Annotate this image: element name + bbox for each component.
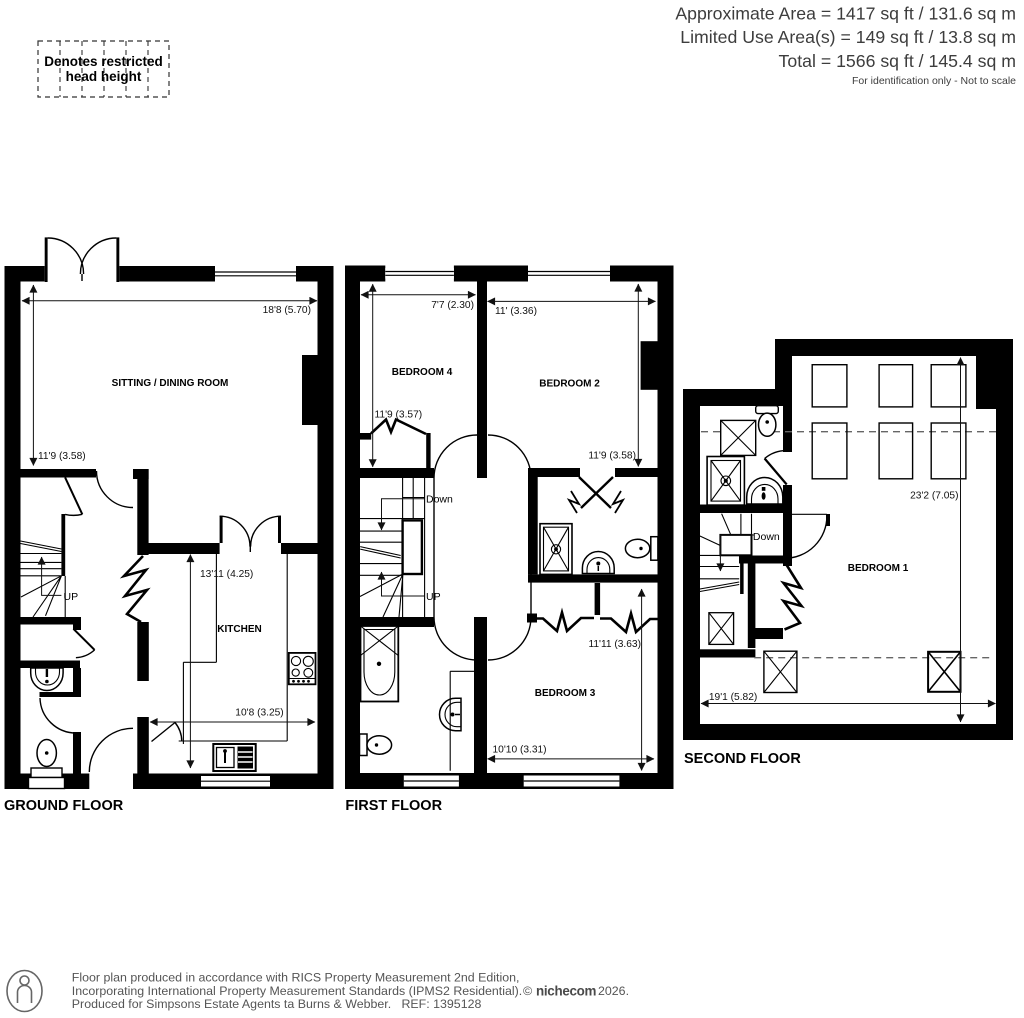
svg-text:Floor plan produced in accorda: Floor plan produced in accordance with R… <box>72 971 520 985</box>
svg-text:©: © <box>523 984 532 998</box>
svg-text:Produced for Simpsons Estate A: Produced for Simpsons Estate Agents ta B… <box>72 997 482 1011</box>
svg-text:23'2 (7.05): 23'2 (7.05) <box>910 491 958 502</box>
svg-text:11'11 (3.63): 11'11 (3.63) <box>588 639 641 650</box>
svg-text:GROUND FLOOR: GROUND FLOOR <box>4 798 124 814</box>
svg-text:19'1 (5.82): 19'1 (5.82) <box>709 692 757 703</box>
svg-text:SITTING / DINING ROOM: SITTING / DINING ROOM <box>112 378 229 389</box>
svg-text:Incorporating International Pr: Incorporating International Property Mea… <box>72 984 522 998</box>
svg-text:nichecom: nichecom <box>536 984 597 999</box>
svg-text:18'8 (5.70): 18'8 (5.70) <box>263 305 311 316</box>
svg-text:2026.: 2026. <box>598 984 629 998</box>
svg-text:UP: UP <box>64 591 79 603</box>
svg-text:11'9 (3.57): 11'9 (3.57) <box>375 410 423 421</box>
svg-text:10'8 (3.25): 10'8 (3.25) <box>235 708 283 719</box>
svg-text:Total = 1566 sq ft / 145.4 sq: Total = 1566 sq ft / 145.4 sq m <box>779 51 1016 71</box>
svg-text:BEDROOM 2: BEDROOM 2 <box>539 379 600 390</box>
svg-text:Approximate Area = 1417 sq ft: Approximate Area = 1417 sq ft / 131.6 sq… <box>675 4 1016 24</box>
svg-text:11' (3.36): 11' (3.36) <box>495 306 537 317</box>
svg-text:Down: Down <box>426 494 453 506</box>
svg-text:BEDROOM 1: BEDROOM 1 <box>848 563 909 574</box>
svg-text:UP: UP <box>426 591 441 603</box>
svg-text:head height: head height <box>66 69 142 84</box>
svg-text:Down: Down <box>753 531 780 543</box>
svg-text:SECOND FLOOR: SECOND FLOOR <box>684 751 801 767</box>
svg-text:11'9 (3.58): 11'9 (3.58) <box>38 451 86 462</box>
svg-text:For identification only - Not: For identification only - Not to scale <box>852 75 1016 87</box>
svg-text:BEDROOM 3: BEDROOM 3 <box>535 688 596 699</box>
svg-text:13'11 (4.25): 13'11 (4.25) <box>200 569 253 580</box>
svg-text:FIRST FLOOR: FIRST FLOOR <box>345 798 442 814</box>
svg-text:BEDROOM 4: BEDROOM 4 <box>392 367 453 378</box>
svg-text:7'7 (2.30): 7'7 (2.30) <box>431 300 474 311</box>
svg-text:Limited Use Area(s) = 149 sq f: Limited Use Area(s) = 149 sq ft / 13.8 s… <box>680 27 1016 47</box>
svg-text:KITCHEN: KITCHEN <box>217 624 261 635</box>
svg-text:10'10 (3.31): 10'10 (3.31) <box>493 745 547 756</box>
svg-text:11'9 (3.58): 11'9 (3.58) <box>588 451 636 462</box>
svg-text:Denotes restricted: Denotes restricted <box>44 54 163 69</box>
